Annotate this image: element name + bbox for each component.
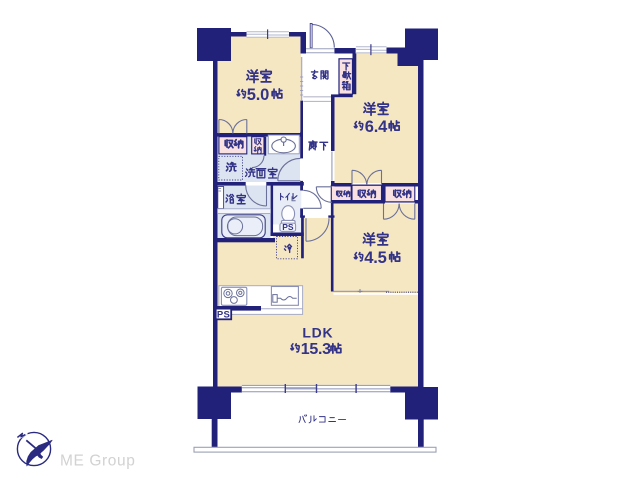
svg-text:15.3: 15.3 (301, 341, 331, 358)
svg-text:5.0: 5.0 (247, 86, 269, 104)
svg-text:PS: PS (282, 222, 294, 232)
svg-text:LDK: LDK (302, 324, 333, 340)
svg-text:4.5: 4.5 (364, 249, 386, 267)
svg-text:6.4: 6.4 (365, 118, 388, 136)
svg-text:ME Group: ME Group (60, 453, 135, 470)
svg-text:PS: PS (217, 310, 230, 321)
